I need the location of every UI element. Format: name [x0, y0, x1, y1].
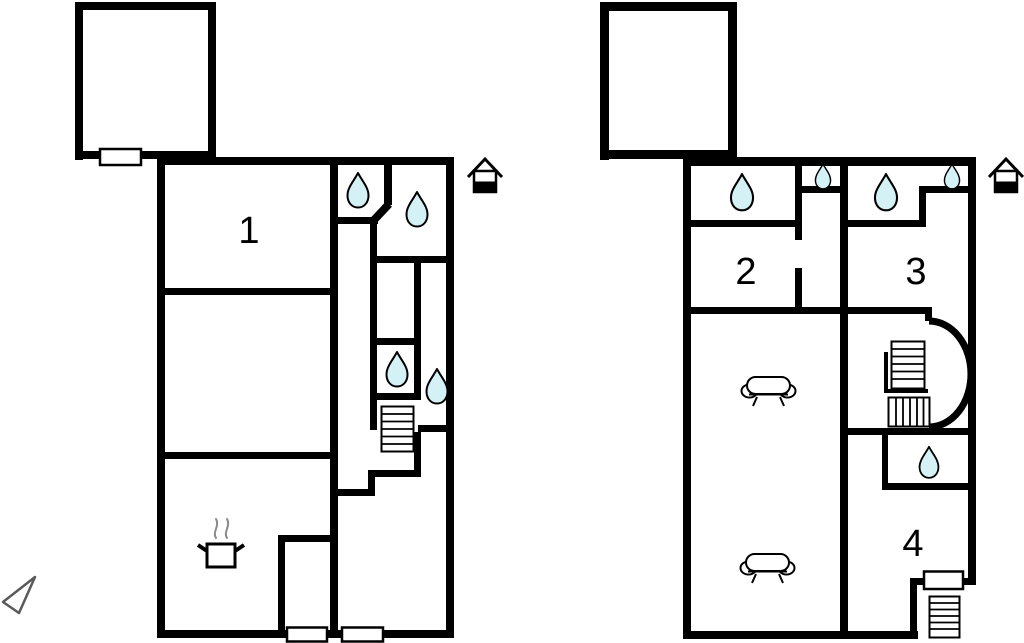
water-drop-icon — [920, 447, 939, 478]
water-drop-icon — [387, 352, 408, 387]
wall-segment — [600, 2, 609, 160]
wall-segment — [882, 432, 888, 490]
wall-segment — [370, 217, 377, 430]
curved-stair-arc — [929, 321, 971, 427]
staircase-icon — [889, 398, 930, 427]
wall-segment — [848, 220, 926, 227]
wall-segment — [165, 452, 332, 459]
staircase-icon — [886, 342, 928, 392]
wall-segment — [414, 263, 421, 400]
wall-segment — [157, 157, 454, 165]
wall-segment — [840, 157, 848, 639]
wall-segment — [75, 2, 216, 10]
exterior-staircase-icon — [930, 597, 960, 638]
water-drop-icon — [348, 173, 369, 208]
door-marker — [342, 628, 383, 642]
wall-segment — [418, 425, 446, 432]
room-4-label: 4 — [902, 523, 923, 565]
staircase-icon — [382, 407, 414, 452]
wall-segment — [600, 2, 737, 11]
wall-segment — [414, 432, 421, 477]
wall-segment — [919, 186, 926, 227]
wall-segment — [691, 220, 798, 227]
wall-segment — [278, 537, 285, 634]
wall-segment — [157, 157, 165, 638]
wall-segment — [377, 256, 446, 263]
door-marker — [924, 572, 963, 590]
wall-segment — [910, 578, 917, 639]
water-drop-icon — [407, 192, 428, 227]
wall-segment — [683, 157, 691, 639]
water-drop-icon — [731, 174, 753, 210]
room-2-label: 2 — [735, 251, 756, 293]
wall-segment — [330, 165, 338, 630]
wall-segment — [683, 157, 976, 166]
water-drop-icon — [815, 164, 830, 189]
window-marker — [100, 149, 141, 165]
wall-segment — [165, 288, 332, 295]
room-1-label: 1 — [238, 210, 259, 252]
wall-segment — [848, 428, 968, 435]
wall-segment — [75, 2, 83, 160]
wall-segment — [795, 157, 802, 240]
wall-segment — [368, 470, 421, 477]
water-drop-icon — [427, 369, 448, 404]
left-plan-walls — [75, 2, 454, 638]
north-arrow-icon — [3, 577, 35, 613]
sofa-icon — [742, 377, 796, 406]
room-3-label: 3 — [905, 251, 926, 293]
left-floor-plan: 1 — [75, 2, 502, 642]
entrance-house-icon — [468, 159, 502, 192]
floor-plan-canvas: 1 — [0, 0, 1024, 643]
wall-segment — [728, 2, 737, 160]
wall-segment — [278, 535, 338, 542]
steam-lines — [215, 519, 228, 538]
wall-segment — [384, 165, 392, 205]
wall-segment — [691, 307, 932, 314]
cooking-pot-icon — [198, 519, 244, 567]
wall-segment — [208, 2, 216, 160]
water-drop-icon — [875, 174, 897, 210]
right-floor-plan: 2 3 4 — [600, 2, 1023, 639]
wall-segment — [882, 483, 968, 490]
wall-segment — [683, 631, 918, 639]
water-drop-icon — [944, 164, 959, 189]
entrance-house-icon — [989, 159, 1023, 192]
door-marker — [287, 628, 327, 642]
sofa-icon — [741, 554, 795, 583]
